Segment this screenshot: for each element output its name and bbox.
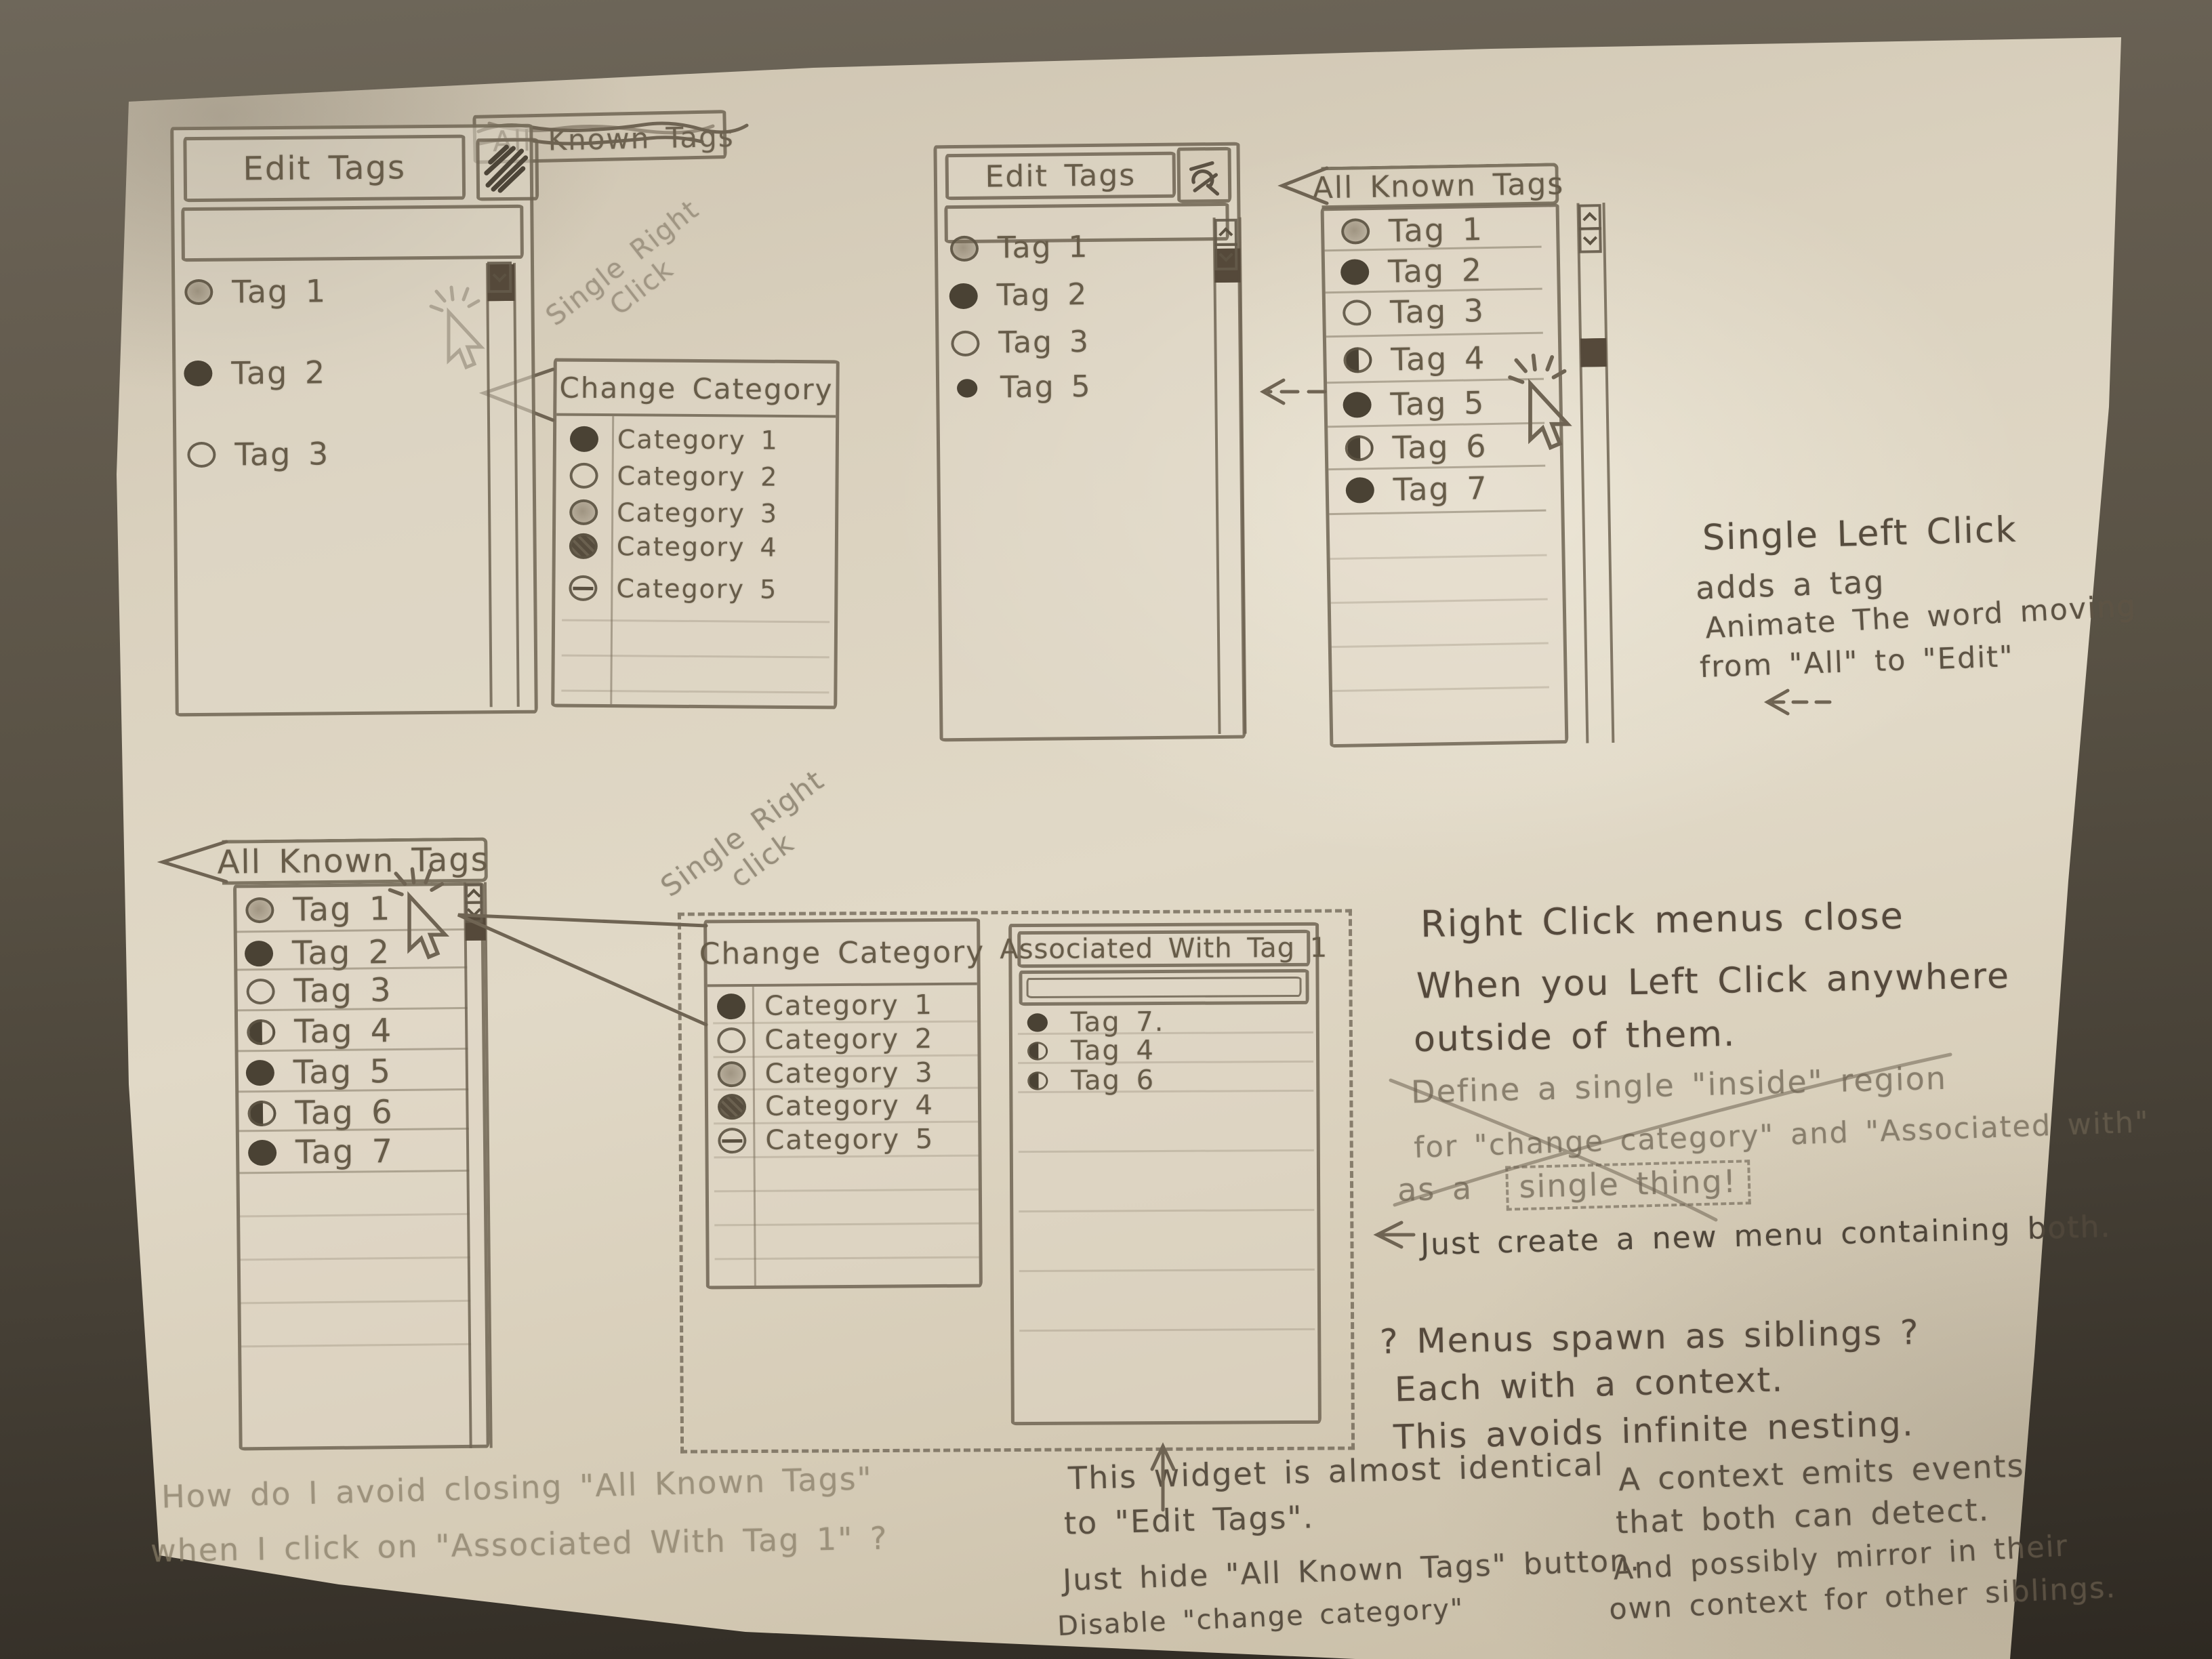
tag-state-icon[interactable] bbox=[1343, 392, 1372, 418]
tag-label[interactable]: Tag 7 bbox=[1393, 470, 1488, 508]
tag-item[interactable]: Tag 6 bbox=[1345, 428, 1488, 467]
tag-label[interactable]: Tag 1 bbox=[232, 272, 327, 310]
window-title-bar: Edit Tags bbox=[945, 152, 1176, 201]
tag-label[interactable]: Tag 6 bbox=[295, 1093, 394, 1132]
tag-state-icon[interactable] bbox=[246, 1060, 274, 1086]
note-struck-define-3: as a single thing! bbox=[1397, 1160, 1751, 1214]
tag-label[interactable]: Tag 6 bbox=[1392, 428, 1488, 466]
menu-change-category-1: Change Category Category 1 Category 2 Ca… bbox=[551, 359, 840, 710]
scroll-up-button[interactable] bbox=[1214, 219, 1237, 246]
tag-state-icon[interactable] bbox=[1343, 347, 1372, 373]
tag-state-icon[interactable] bbox=[184, 361, 212, 386]
note-adds-a-tag: adds a tag bbox=[1695, 563, 1885, 607]
tag-item[interactable]: Tag 3 bbox=[246, 971, 392, 1010]
tag-item[interactable]: Tag 5 bbox=[953, 369, 1092, 405]
tag-item[interactable]: Tag 1 bbox=[184, 272, 327, 310]
tag-label[interactable]: Tag 2 bbox=[1388, 251, 1483, 289]
tag-label[interactable]: Tag 4 bbox=[1391, 340, 1486, 377]
category-label[interactable]: Category 2 bbox=[617, 461, 778, 492]
category-item[interactable]: Category 3 bbox=[569, 497, 778, 529]
menu-title: Change Category bbox=[699, 935, 985, 971]
scrollbar-thumb[interactable] bbox=[1580, 338, 1607, 367]
scroll-down-button[interactable] bbox=[1214, 243, 1237, 270]
panel-associated-with-tag1: Associated With Tag 1 Tag 7. Tag 4 Tag 6 bbox=[1008, 922, 1322, 1425]
tag-state-icon[interactable] bbox=[184, 279, 213, 305]
tag-item[interactable]: Tag 1 bbox=[245, 890, 392, 929]
tag-state-icon[interactable] bbox=[1027, 1013, 1048, 1032]
panel-all-known-tags-bottom: All Known Tags Tag 1 Tag 2 Tag 3 Tag 4 T… bbox=[158, 836, 503, 1452]
tag-state-icon[interactable] bbox=[957, 379, 978, 398]
category-label[interactable]: Category 4 bbox=[617, 531, 778, 562]
menu-title-bar: Change Category bbox=[556, 362, 836, 418]
category-item[interactable]: Category 4 bbox=[569, 531, 778, 562]
input-inner-frame bbox=[1026, 977, 1301, 998]
tag-state-icon[interactable] bbox=[949, 283, 978, 308]
tag-label[interactable]: Tag 2 bbox=[996, 277, 1088, 312]
tag-item[interactable]: Tag 4 bbox=[1343, 340, 1486, 379]
tag-label[interactable]: Tag 1 bbox=[293, 890, 392, 929]
panel-title-banner: All Known Tags bbox=[1321, 163, 1559, 209]
category-state-icon[interactable] bbox=[717, 994, 745, 1019]
tag-label[interactable]: Tag 1 bbox=[1389, 211, 1484, 249]
tag-state-icon[interactable] bbox=[1345, 477, 1374, 504]
category-item[interactable]: Category 1 bbox=[570, 424, 779, 455]
note-single-left-click: Single Left Click bbox=[1702, 510, 2018, 558]
tag-state-icon[interactable] bbox=[246, 979, 274, 1004]
tag-search-input[interactable] bbox=[1019, 969, 1309, 1006]
tag-item[interactable]: Tag 3 bbox=[187, 435, 329, 473]
menu-title-bar: Change Category bbox=[707, 922, 977, 987]
struck-prefix: as a bbox=[1397, 1170, 1473, 1208]
scrollbar[interactable] bbox=[1213, 218, 1247, 734]
category-label[interactable]: Category 1 bbox=[764, 989, 933, 1022]
tag-state-icon[interactable] bbox=[187, 442, 216, 468]
category-item[interactable]: Category 5 bbox=[718, 1124, 934, 1156]
panel-all-known-tags-top: All Known Tags Tag 1 Tag 2 Tag 3 Tag 4 T… bbox=[1275, 160, 1628, 756]
window-title: Edit Tags bbox=[243, 148, 406, 188]
single-thing-dashed-box: single thing! bbox=[1505, 1160, 1751, 1210]
scroll-up-button[interactable] bbox=[1578, 204, 1602, 230]
category-state-icon[interactable] bbox=[569, 533, 598, 559]
tag-item[interactable]: Tag 1 bbox=[1341, 211, 1484, 250]
category-item[interactable]: Category 4 bbox=[718, 1090, 934, 1122]
category-state-icon[interactable] bbox=[570, 426, 598, 452]
scroll-down-button[interactable] bbox=[465, 901, 483, 923]
window-title: Edit Tags bbox=[985, 158, 1136, 194]
tag-state-icon[interactable] bbox=[950, 235, 979, 261]
note-right-click-close-3: outside of them. bbox=[1414, 1014, 1736, 1060]
tag-label[interactable]: Tag 5 bbox=[293, 1052, 392, 1092]
tag-state-icon[interactable] bbox=[1027, 1071, 1048, 1090]
tag-state-icon[interactable] bbox=[1340, 259, 1370, 285]
category-item[interactable]: Category 2 bbox=[569, 461, 778, 492]
category-item[interactable]: Category 5 bbox=[569, 573, 777, 605]
scrollbar[interactable] bbox=[1576, 203, 1614, 743]
category-item[interactable]: Category 2 bbox=[717, 1023, 933, 1056]
tag-state-icon[interactable] bbox=[247, 1101, 276, 1126]
tag-state-icon[interactable] bbox=[245, 941, 273, 966]
tag-label[interactable]: Tag 2 bbox=[292, 933, 391, 972]
scribble-glyph-icon bbox=[1181, 150, 1229, 200]
note-widget-2: to "Edit Tags". bbox=[1063, 1498, 1315, 1542]
tag-label[interactable]: Tag 2 bbox=[231, 354, 326, 391]
tag-state-icon[interactable] bbox=[1343, 300, 1372, 326]
tag-item[interactable]: Tag 3 bbox=[1343, 292, 1486, 331]
tag-state-icon[interactable] bbox=[245, 897, 274, 923]
category-label[interactable]: Category 3 bbox=[617, 497, 778, 529]
window-edit-tags-1: Edit Tags Tag 1 Tag 2 Tag 3 bbox=[170, 124, 538, 717]
window-title-bar: Edit Tags bbox=[183, 135, 466, 203]
category-state-icon[interactable] bbox=[718, 1061, 746, 1087]
category-label[interactable]: Category 5 bbox=[765, 1124, 934, 1156]
category-label[interactable]: Category 4 bbox=[765, 1090, 934, 1122]
tag-label[interactable]: Tag 3 bbox=[234, 435, 329, 472]
panel-title-bar: Associated With Tag 1 bbox=[1017, 930, 1310, 968]
tag-search-input[interactable] bbox=[181, 205, 524, 262]
menu-title: Change Category bbox=[559, 371, 833, 406]
tag-label[interactable]: Tag 5 bbox=[1000, 369, 1092, 405]
tag-item[interactable]: Tag 5 bbox=[246, 1052, 392, 1092]
tag-item[interactable]: Tag 2 bbox=[949, 277, 1088, 313]
note-right-click-close-1: Right Click menus close bbox=[1420, 895, 1905, 945]
tag-item[interactable]: Tag 3 bbox=[951, 325, 1090, 361]
menu-change-category-2: Change Category Category 1 Category 2 Ca… bbox=[703, 918, 983, 1290]
tag-label[interactable]: Tag 4 bbox=[294, 1012, 393, 1051]
photo-of-sketch: All Known Tags Edit Tags Tag 1 Tag 2 Tag… bbox=[0, 0, 2212, 1659]
category-state-icon[interactable] bbox=[569, 575, 597, 601]
category-item[interactable]: Category 3 bbox=[718, 1057, 934, 1090]
window-edit-tags-2: Edit Tags Tag 1 Tag 2 Tag 3 Tag 5 bbox=[933, 142, 1246, 742]
tag-item[interactable]: Tag 7 bbox=[1345, 470, 1488, 509]
tag-label[interactable]: Tag 1 bbox=[998, 230, 1089, 265]
all-known-tags-button[interactable] bbox=[476, 138, 539, 201]
category-label[interactable]: Category 2 bbox=[764, 1023, 933, 1056]
scribble-glyph-icon bbox=[479, 142, 534, 197]
tag-state-icon[interactable] bbox=[1345, 435, 1374, 462]
tag-label[interactable]: Tag 7 bbox=[295, 1132, 394, 1172]
category-label[interactable]: Category 3 bbox=[765, 1057, 934, 1090]
tag-state-icon[interactable] bbox=[248, 1140, 276, 1166]
tag-item[interactable]: Tag 4 bbox=[247, 1012, 393, 1051]
tag-state-icon[interactable] bbox=[951, 330, 979, 356]
scroll-down-button[interactable] bbox=[1578, 227, 1602, 253]
category-state-icon[interactable] bbox=[718, 1094, 746, 1120]
category-state-icon[interactable] bbox=[569, 463, 598, 489]
tag-state-icon[interactable] bbox=[1027, 1042, 1048, 1061]
tag-label[interactable]: Tag 5 bbox=[1390, 384, 1486, 422]
tag-state-icon[interactable] bbox=[247, 1019, 275, 1045]
panel-title-banner: All Known Tags bbox=[222, 838, 488, 885]
panel-title: All Known Tags bbox=[1312, 167, 1564, 205]
tag-item[interactable]: Tag 1 bbox=[950, 230, 1089, 266]
tag-label[interactable]: Tag 3 bbox=[998, 325, 1090, 360]
category-label[interactable]: Category 5 bbox=[616, 573, 777, 605]
tag-item[interactable]: Tag 2 bbox=[1340, 251, 1483, 291]
panel-title: Associated With Tag 1 bbox=[1000, 933, 1328, 966]
category-state-icon[interactable] bbox=[718, 1128, 746, 1153]
tag-state-icon[interactable] bbox=[1341, 218, 1370, 245]
tag-item[interactable]: Tag 5 bbox=[1343, 384, 1486, 424]
tag-label[interactable]: Tag 3 bbox=[1390, 292, 1486, 330]
tag-item[interactable]: Tag 7 bbox=[248, 1132, 394, 1172]
category-state-icon[interactable] bbox=[569, 499, 598, 525]
all-known-tags-button[interactable] bbox=[1176, 147, 1231, 203]
panel-title: All Known Tags bbox=[217, 841, 489, 882]
tag-item[interactable]: Tag 6 bbox=[247, 1093, 394, 1132]
category-state-icon[interactable] bbox=[717, 1027, 745, 1053]
tag-label[interactable]: Tag 3 bbox=[293, 971, 392, 1010]
scrollbar[interactable] bbox=[486, 263, 520, 707]
category-item[interactable]: Category 1 bbox=[717, 989, 933, 1022]
scroll-down-button[interactable] bbox=[487, 262, 512, 293]
category-label[interactable]: Category 1 bbox=[617, 424, 779, 455]
tag-item[interactable]: Tag 2 bbox=[184, 354, 326, 392]
